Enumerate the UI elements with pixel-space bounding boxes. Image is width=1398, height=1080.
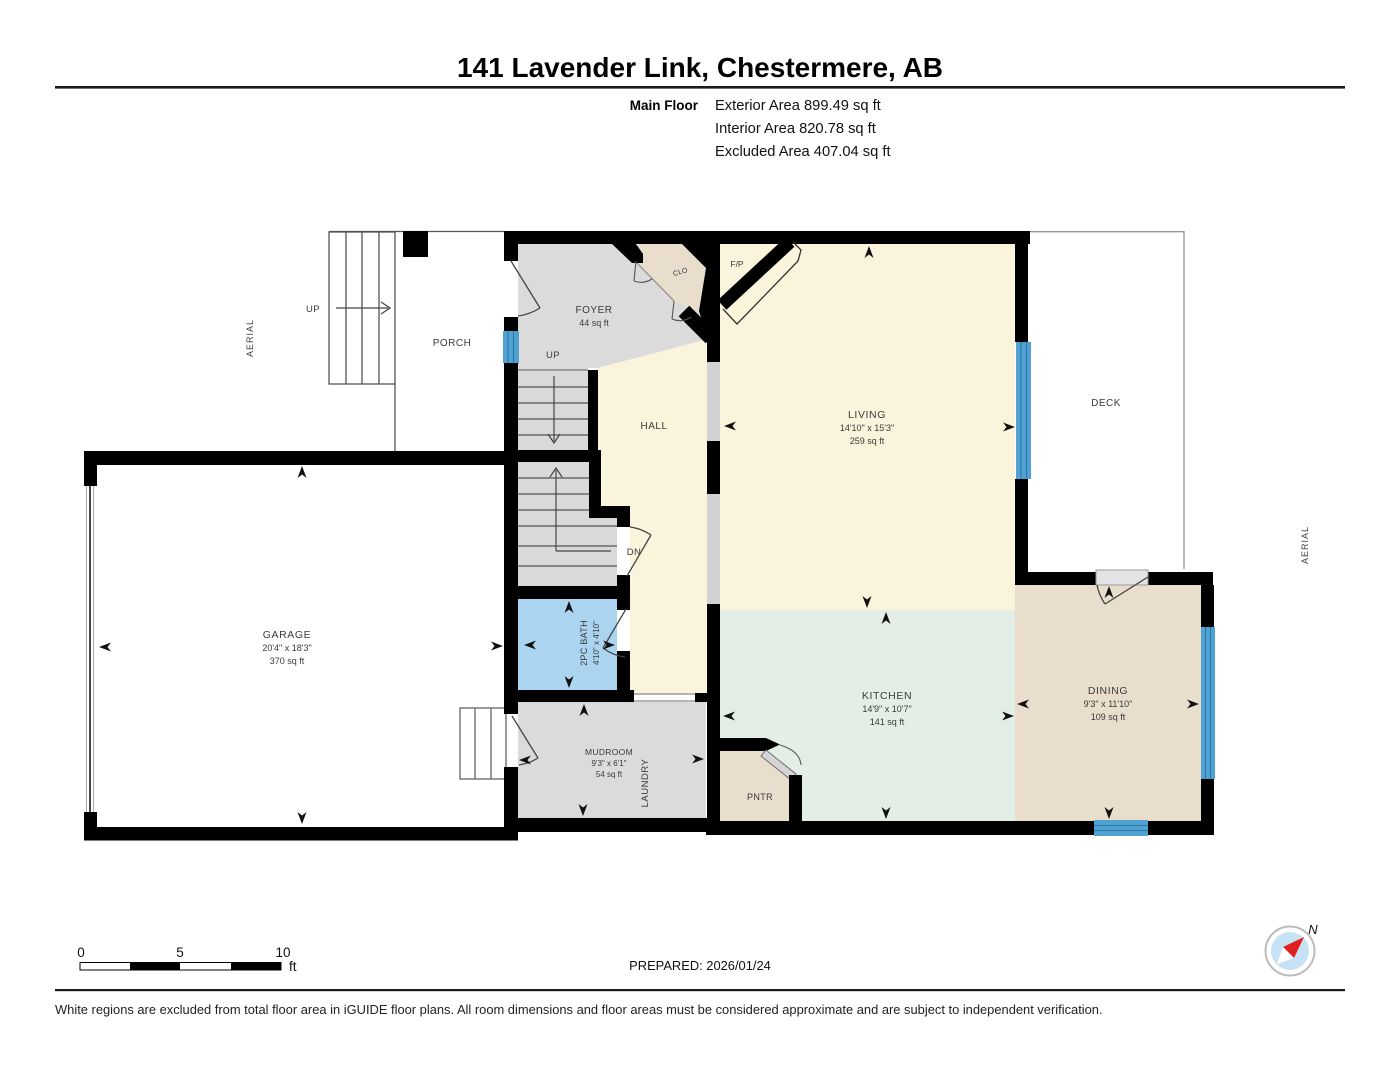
svg-text:White regions are excluded fro: White regions are excluded from total fl… xyxy=(55,1002,1103,1017)
svg-text:KITCHEN: KITCHEN xyxy=(862,690,912,702)
svg-text:UP: UP xyxy=(546,350,560,361)
svg-text:HALL: HALL xyxy=(640,421,667,432)
svg-text:AERIAL: AERIAL xyxy=(1300,526,1310,564)
svg-text:MUDROOM: MUDROOM xyxy=(585,747,633,757)
svg-text:GARAGE: GARAGE xyxy=(263,629,312,641)
svg-text:Exterior Area 899.49 sq ft: Exterior Area 899.49 sq ft xyxy=(715,98,881,114)
svg-text:10: 10 xyxy=(275,945,290,960)
svg-text:AERIAL: AERIAL xyxy=(245,319,255,357)
svg-text:4'10" x 4'10": 4'10" x 4'10" xyxy=(592,621,601,665)
svg-text:14'10" x 15'3": 14'10" x 15'3" xyxy=(840,423,894,433)
svg-text:ft: ft xyxy=(289,959,297,974)
svg-text:FOYER: FOYER xyxy=(576,305,613,316)
svg-text:LIVING: LIVING xyxy=(848,409,886,421)
svg-text:259 sq ft: 259 sq ft xyxy=(850,436,885,446)
svg-text:141 Lavender Link, Chestermere: 141 Lavender Link, Chestermere, AB xyxy=(457,52,943,83)
svg-text:PREPARED: 2026/01/24: PREPARED: 2026/01/24 xyxy=(629,958,771,973)
svg-text:141 sq ft: 141 sq ft xyxy=(870,717,905,727)
svg-text:PORCH: PORCH xyxy=(433,338,472,349)
svg-text:5: 5 xyxy=(176,945,184,960)
svg-text:LAUNDRY: LAUNDRY xyxy=(640,758,651,807)
svg-text:20'4" x 18'3": 20'4" x 18'3" xyxy=(262,643,311,653)
svg-text:UP: UP xyxy=(306,304,320,315)
svg-text:109 sq ft: 109 sq ft xyxy=(1091,712,1126,722)
svg-text:Interior Area 820.78 sq ft: Interior Area 820.78 sq ft xyxy=(715,121,876,137)
svg-text:Excluded Area 407.04 sq ft: Excluded Area 407.04 sq ft xyxy=(715,144,891,160)
svg-text:9'3" x 6'1": 9'3" x 6'1" xyxy=(592,759,627,768)
svg-text:DN: DN xyxy=(627,547,642,558)
svg-text:PNTR: PNTR xyxy=(747,792,773,802)
svg-text:54 sq ft: 54 sq ft xyxy=(596,770,623,779)
svg-text:44 sq ft: 44 sq ft xyxy=(579,318,609,328)
svg-text:0: 0 xyxy=(77,945,85,960)
svg-text:F/P: F/P xyxy=(730,259,744,269)
svg-text:Main Floor: Main Floor xyxy=(630,98,699,113)
svg-text:N: N xyxy=(1308,922,1318,937)
svg-text:2PC BATH: 2PC BATH xyxy=(579,620,589,666)
svg-text:9'3" x 11'10": 9'3" x 11'10" xyxy=(1084,699,1133,709)
svg-text:370 sq ft: 370 sq ft xyxy=(270,656,305,666)
svg-text:14'9" x 10'7": 14'9" x 10'7" xyxy=(862,704,911,714)
svg-text:DINING: DINING xyxy=(1088,685,1128,697)
svg-text:DECK: DECK xyxy=(1091,398,1121,409)
